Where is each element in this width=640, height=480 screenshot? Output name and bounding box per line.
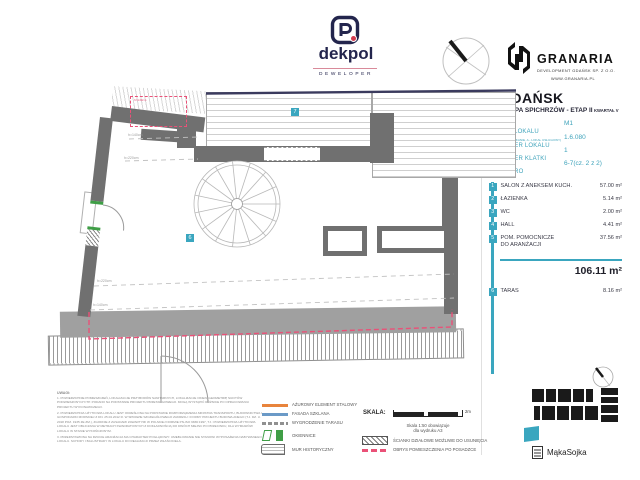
room-name: TARAS [501,288,604,295]
granaria-logo-sub2: WWW.GRANARIA.PL [551,76,595,81]
room-row: 5 POM. POMOCNICZE DO ARANŻACJI 37.56 m² [489,235,622,250]
minimap-building [557,406,569,420]
scale-bar-segment-a [394,412,424,416]
legend-historic-wall-label: MUR HISTORYCZNY [292,447,334,452]
removable-wall-hatch-patch [85,229,100,246]
scale-note: Skala 1:50 obowiązuje dla wydruku A3 [388,423,468,433]
scale-label: SKALA: [363,410,386,416]
shaft-opening-left [323,226,367,256]
legend-floor-contour-swatch [362,449,388,452]
room-area: 2.00 m² [603,209,622,215]
minimap-building [542,406,555,420]
scale-bar-tick-right [462,410,463,417]
ceiling-height-label-1: h=140cm [128,133,143,137]
field-value: 6-7(cz. 2 z 2) [564,160,602,167]
wall-connector [177,126,196,148]
room-name: SALON Z ANEKSEM KUCH. [501,183,600,190]
room-number-badge: 5 [489,235,497,243]
room-row: 4 HALL 4.41 m² [489,222,622,230]
legend-historic-wall-icon [261,444,285,455]
room-row: 2 ŁAZIENKA 5.14 m² [489,196,622,204]
legend-shutters-label: OKIENNICE [292,433,316,438]
note-item: 1. POWIERZCHNIE POMIESZCZEŃ, LOKALIZACJE… [57,396,262,409]
shaft-opening-right [377,226,449,253]
scale-bar-segment-b [428,412,458,416]
plan-badge-terrace: 7 [291,108,299,116]
room-row: 1 SALON Z ANEKSEM KUCH. 57.00 m² [489,183,622,191]
sitemap-compass [593,367,613,387]
south-wall-band [60,306,456,338]
scale-bar-baseline [393,416,463,417]
makasojka-logo-text: MąkaSojka [547,448,587,457]
terrace-row: 6 TARAS 8.16 m² [489,288,622,296]
granaria-logo-sub1: DEVELOPMENT GDAŃSK SP. Z O.O. [537,68,615,73]
room-name-line1: POM. POMOCNICZE [501,235,555,241]
granaria-logo-icon [505,42,533,74]
legend-terrace-fence-label: WYGRODZENIE TARASU [292,420,343,425]
minimap-building [573,389,584,402]
shutter-upper [90,200,103,204]
minimap-highlighted-building [524,426,539,442]
scale-bar-tick-left [393,410,394,417]
scale-note-line2: dla wydruku A3 [388,428,468,433]
makasojka-logo-icon [532,446,543,459]
minimap-building [601,405,618,413]
room-area: 57.00 m² [600,183,622,189]
notes-block: UWAGI: 1. POWIERZCHNIE POMIESZCZEŃ, LOKA… [57,391,262,445]
room-area: 5.14 m² [603,196,622,202]
ceiling-height-label-2: h=220cm [124,156,139,160]
dekpol-logo-divider [313,68,377,69]
minimap-building [534,406,540,420]
north-compass [443,38,489,84]
minimap-building [601,397,618,403]
dekpol-logo-icon [330,15,360,45]
minimap-building [546,389,556,402]
room-number-badge: 3 [489,209,497,217]
scale-bar-length: 2m [465,409,471,414]
legend-terrace-fence-swatch [262,422,288,425]
minimap-building [558,389,571,402]
room-area: 8.16 m² [603,288,622,294]
room-name: HALL [501,222,604,229]
minimap-building [532,389,544,402]
notes-title: UWAGI: [57,391,262,395]
plan-badge-room: 6 [186,234,194,242]
dekpol-logo-tagline: DEWELOPER [309,72,383,77]
wall-east-step [442,178,458,230]
room-area: 37.56 m² [600,235,622,241]
legend-shutters-icon-b [276,430,283,441]
room-number-badge: 2 [489,196,497,204]
legend-removable-walls-label: ŚCIANKI DZIAŁOWE MOŻLIWE DO USUNIĘCIA [393,438,487,443]
room-name: ŁAZIENKA [501,196,604,203]
field-value: 1.6.080 [564,134,586,141]
spiral-staircase [194,161,280,247]
note-item: 2. POWIERZCHNIA UŻYTKOWA LOKALU JEST OKR… [57,411,262,433]
room-number-badge: 1 [489,183,497,191]
legend-steel-element-label: AŻUROWY ELEMENT STALOWY [292,402,357,407]
field-value: 1 [564,147,568,154]
legend-floor-contour-label: OBRYS POMIESZCZENIA PO POSADZCE [393,447,476,452]
room-name: WC [501,209,604,216]
room-name-line2: DO ARANŻACJI [501,242,542,248]
field-row-pietro: PIĘTRO 6-7(cz. 2 z 2) [500,160,630,178]
granaria-logo-text: GRANARIA [537,52,614,66]
total-area: 106.11 m² [489,265,622,277]
minimap-building [571,406,583,420]
wall-west-upper-segment [90,117,112,202]
floor-plan-sheet: dekpol DEWELOPER GRANARIA DEVELOPMENT GD… [0,0,640,480]
legend-steel-element-swatch [262,404,288,407]
legend-shutters-icon-a [262,430,272,441]
panel-quarter: KWARTAŁ V [594,108,619,113]
room-number-badge: 4 [489,222,497,230]
wall-chimney-block [141,129,179,143]
minimap-building [586,389,593,402]
room-number-badge: 6 [489,288,497,296]
legend-glass-facade-label: FASADA SZKLANA [292,411,330,416]
room-name: POM. POMOCNICZE DO ARANŻACJI [501,235,600,250]
total-divider [500,259,622,261]
terrace-opening-threshold [264,147,320,161]
field-value: M1 [564,120,573,127]
floor-contour-dim-label: h=140cm [134,98,146,102]
ceiling-height-label-4: h=140cm [93,303,108,307]
legend-removable-walls-swatch [362,436,388,445]
terrace-decking-left [206,92,372,148]
note-item: 3. PRZEDSTAWIONA NA RZUCIE ARANŻACJA MA … [57,435,262,444]
legend-glass-facade-swatch [262,413,288,416]
minimap-building [585,406,598,420]
wall-east-upper [370,113,394,163]
dekpol-logo-text: dekpol [309,44,383,64]
room-area: 4.41 m² [603,222,622,228]
minimap-building [601,415,618,422]
room-row: 3 WC 2.00 m² [489,209,622,217]
ceiling-height-label-3: h=220cm [97,279,112,283]
minimap-building [601,388,618,395]
